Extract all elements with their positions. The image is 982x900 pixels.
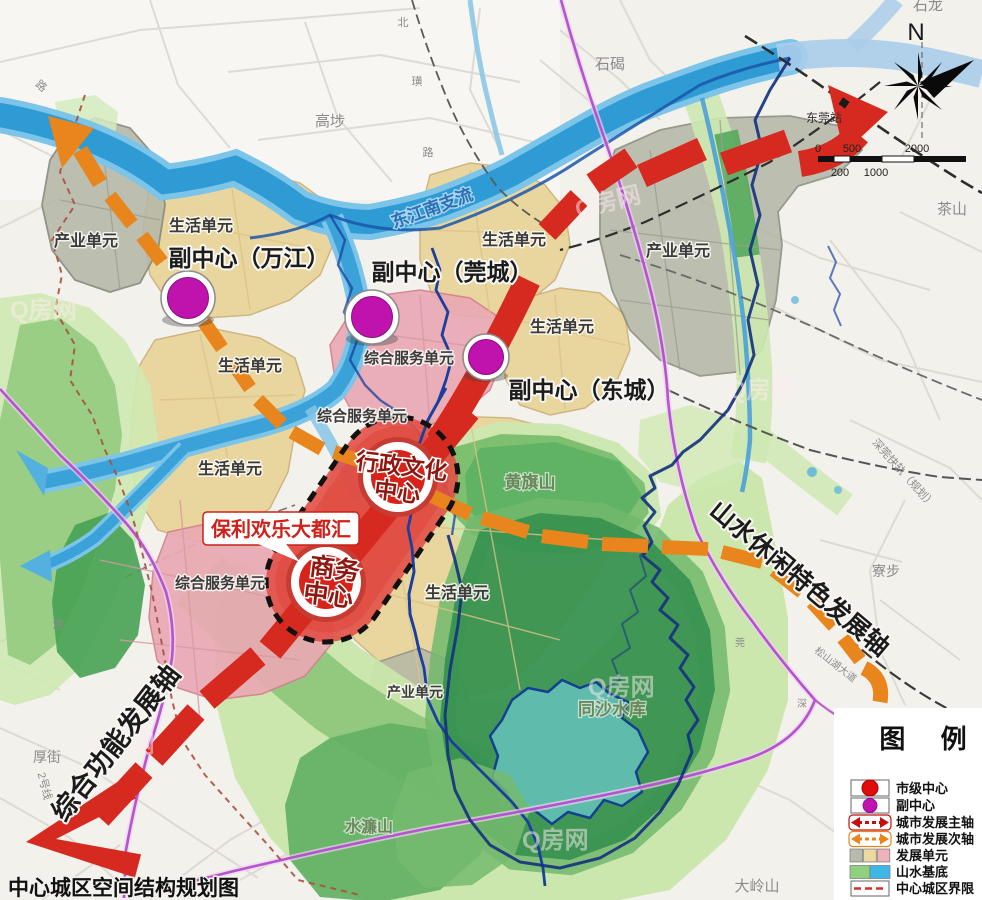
svg-text:Q房网: Q房网: [522, 826, 589, 854]
svg-text:城市发展次轴: 城市发展次轴: [896, 832, 974, 847]
svg-text:中心: 中心: [373, 476, 422, 507]
svg-text:璜: 璜: [412, 74, 423, 88]
svg-text:Q房网: Q房网: [728, 376, 795, 404]
svg-text:中心城区界限: 中心城区界限: [896, 881, 975, 896]
svg-text:保利欢乐大都汇: 保利欢乐大都汇: [210, 517, 351, 541]
svg-text:产业单元: 产业单元: [387, 684, 443, 700]
svg-text:图 例: 图 例: [879, 724, 980, 754]
svg-text:生活单元: 生活单元: [218, 356, 282, 375]
svg-text:Q房网: Q房网: [10, 296, 77, 324]
svg-text:N: N: [907, 19, 924, 46]
svg-text:生活单元: 生活单元: [530, 317, 594, 336]
svg-text:东莞站: 东莞站: [806, 111, 842, 125]
svg-text:港: 港: [53, 618, 64, 631]
svg-text:0: 0: [815, 143, 821, 155]
svg-text:生活单元: 生活单元: [425, 583, 489, 602]
svg-text:厚街: 厚街: [33, 749, 61, 765]
svg-text:深: 深: [797, 698, 807, 710]
svg-text:500: 500: [843, 143, 861, 155]
svg-text:副中心（东城）: 副中心（东城）: [509, 377, 670, 403]
svg-text:高埗: 高埗: [315, 113, 345, 130]
svg-text:市级中心: 市级中心: [896, 781, 948, 796]
svg-text:石碣: 石碣: [595, 56, 625, 73]
svg-text:综合服务单元: 综合服务单元: [364, 349, 454, 367]
svg-text:综合服务单元: 综合服务单元: [317, 407, 407, 425]
svg-text:副中心: 副中心: [896, 798, 935, 813]
svg-text:生活单元: 生活单元: [482, 230, 546, 249]
svg-text:同沙水库: 同沙水库: [578, 699, 646, 719]
svg-text:2000: 2000: [905, 143, 929, 155]
svg-text:Q房网: Q房网: [588, 673, 655, 701]
svg-text:中心城区空间结构规划图: 中心城区空间结构规划图: [8, 876, 239, 900]
svg-text:山水基底: 山水基底: [896, 865, 948, 880]
svg-text:产业单元: 产业单元: [646, 241, 710, 260]
svg-text:水濂山: 水濂山: [345, 817, 393, 836]
svg-text:北: 北: [398, 16, 409, 29]
svg-text:石龙: 石龙: [913, 0, 943, 14]
svg-text:寮步: 寮步: [872, 563, 900, 579]
svg-text:城市发展主轴: 城市发展主轴: [896, 815, 974, 830]
svg-text:产业单元: 产业单元: [54, 231, 118, 250]
svg-text:生活单元: 生活单元: [169, 216, 233, 235]
svg-text:莞: 莞: [735, 637, 745, 649]
svg-text:副中心（莞城）: 副中心（莞城）: [372, 259, 533, 285]
svg-text:生活单元: 生活单元: [198, 459, 262, 478]
svg-text:茶山: 茶山: [937, 201, 967, 218]
svg-text:1000: 1000: [864, 167, 888, 179]
svg-text:黄旗山: 黄旗山: [505, 472, 556, 492]
svg-text:路: 路: [423, 146, 434, 159]
svg-text:副中心（万江）: 副中心（万江）: [169, 245, 330, 271]
svg-text:综合服务单元: 综合服务单元: [175, 574, 265, 592]
svg-text:大岭山: 大岭山: [734, 878, 779, 895]
svg-text:发展单元: 发展单元: [895, 848, 948, 863]
svg-text:200: 200: [831, 167, 849, 179]
